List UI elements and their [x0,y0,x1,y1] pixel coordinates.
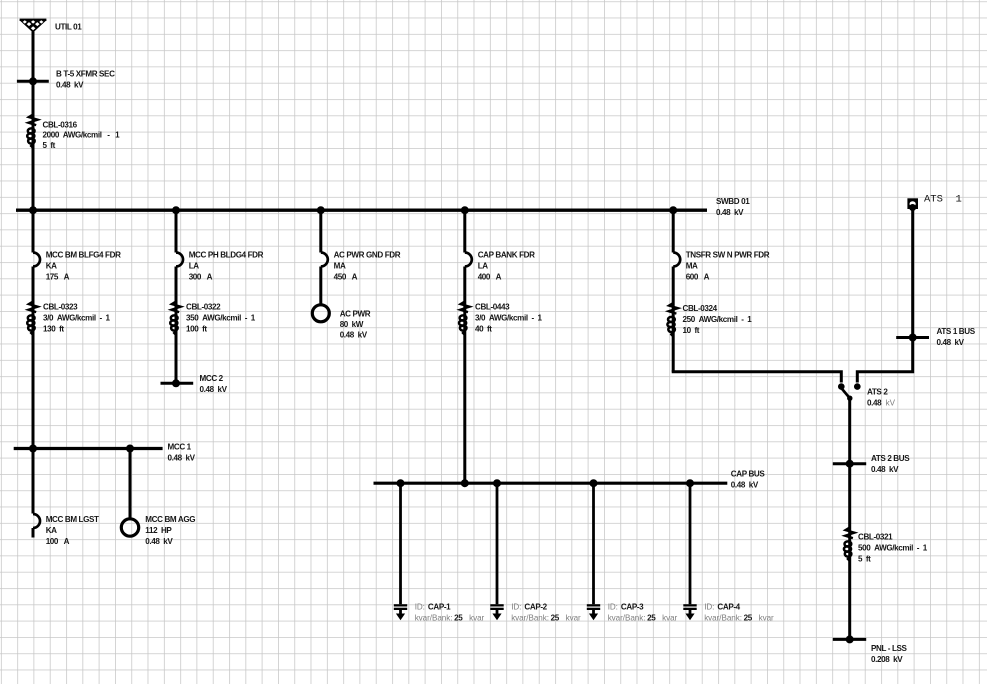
svg-text:0.208 kV: 0.208 kV [871,655,903,664]
svg-text:5 ft: 5 ft [43,141,56,150]
svg-text:0.48 kV: 0.48 kV [867,398,896,407]
svg-text:2000 AWG/kcmil - 1: 2000 AWG/kcmil - 1 [43,131,121,140]
svg-text:ID:CAP-1: ID:CAP-1 [415,602,451,611]
svg-text:ATS 1 BUS: ATS 1 BUS [937,327,976,336]
svg-text:600 A: 600 A [686,273,710,282]
svg-text:100 A: 100 A [46,537,70,546]
svg-text:0.48 kV: 0.48 kV [145,537,173,546]
svg-text:40 ft: 40 ft [475,325,492,334]
svg-text:ID:CAP-4: ID:CAP-4 [704,602,740,611]
svg-text:175 A: 175 A [46,273,70,282]
svg-text:SWBD 01: SWBD 01 [716,197,750,206]
svg-text:CAP BANK FDR: CAP BANK FDR [478,251,535,260]
svg-text:5 ft: 5 ft [858,554,871,563]
svg-text:ATS 2 BUS: ATS 2 BUS [871,454,910,463]
svg-text:CBL-0321: CBL-0321 [858,532,893,541]
svg-text:ID:CAP-3: ID:CAP-3 [608,602,644,611]
svg-text:100 ft: 100 ft [186,325,207,334]
svg-text:CAP BUS: CAP BUS [731,469,766,478]
svg-text:400 A: 400 A [478,273,502,282]
svg-text:AC PWR GND FDR: AC PWR GND FDR [334,251,401,260]
svg-text:0.48 kV: 0.48 kV [731,480,759,489]
svg-text:LA: LA [189,262,200,271]
svg-text:ID:CAP-2: ID:CAP-2 [511,602,547,611]
svg-text:CBL-0323: CBL-0323 [43,303,78,312]
svg-text:CBL-0316: CBL-0316 [43,120,78,129]
svg-text:130 ft: 130 ft [43,325,64,334]
svg-text:UTIL 01: UTIL 01 [55,22,82,31]
svg-text:0.48 kV: 0.48 kV [937,338,965,347]
svg-text:0.48 kV: 0.48 kV [168,454,196,463]
svg-text:kvar/Bank:25kvar: kvar/Bank:25kvar [704,613,774,622]
svg-text:500 AWG/kcmil - 1: 500 AWG/kcmil - 1 [858,543,928,552]
svg-text:MCC BM LGST: MCC BM LGST [46,515,99,524]
svg-text:0.48 kV: 0.48 kV [871,465,899,474]
svg-text:kvar/Bank:25kvar: kvar/Bank:25kvar [608,613,678,622]
svg-text:0.48 kV: 0.48 kV [200,385,228,394]
svg-text:350 AWG/kcmil - 1: 350 AWG/kcmil - 1 [186,314,256,323]
svg-text:PNL - LSS: PNL - LSS [871,644,908,653]
svg-text:LA: LA [478,262,489,271]
svg-text:KA: KA [46,526,57,535]
svg-text:0.48 kV: 0.48 kV [716,208,744,217]
svg-text:ATS 1: ATS 1 [924,193,962,205]
svg-text:112 HP: 112 HP [145,526,172,535]
svg-text:kvar/Bank:25kvar: kvar/Bank:25kvar [415,613,485,622]
svg-text:MA: MA [334,262,346,271]
svg-text:kvar/Bank:25kvar: kvar/Bank:25kvar [511,613,581,622]
svg-text:0.48 kV: 0.48 kV [340,331,368,340]
svg-text:MCC 1: MCC 1 [168,443,192,452]
svg-text:0.48 kV: 0.48 kV [56,80,84,89]
svg-text:3/0 AWG/kcmil - 1: 3/0 AWG/kcmil - 1 [475,314,542,323]
svg-text:3/0 AWG/kcmil - 1: 3/0 AWG/kcmil - 1 [43,314,110,323]
svg-text:MCC BM AGG: MCC BM AGG [145,515,195,524]
svg-text:MCC BM BLFG4 FDR: MCC BM BLFG4 FDR [46,251,121,260]
svg-text:250 AWG/kcmil - 1: 250 AWG/kcmil - 1 [683,315,753,324]
svg-text:ATS 2: ATS 2 [867,387,888,396]
svg-text:B T-5 XFMR SEC: B T-5 XFMR SEC [56,69,115,78]
svg-text:TNSFR SW N PWR FDR: TNSFR SW N PWR FDR [686,251,770,260]
svg-text:300 A: 300 A [189,273,213,282]
svg-text:450 A: 450 A [334,273,358,282]
svg-text:80 kW: 80 kW [340,320,364,329]
svg-text:AC PWR: AC PWR [340,310,371,319]
svg-text:MCC PH BLDG4 FDR: MCC PH BLDG4 FDR [189,251,264,260]
svg-text:CBL-0322: CBL-0322 [186,303,221,312]
svg-text:MCC 2: MCC 2 [200,374,224,383]
svg-text:10 ft: 10 ft [683,326,700,335]
svg-text:KA: KA [46,262,57,271]
svg-text:MA: MA [686,262,698,271]
svg-text:CBL-0324: CBL-0324 [683,304,718,313]
svg-text:CBL-0443: CBL-0443 [475,303,510,312]
